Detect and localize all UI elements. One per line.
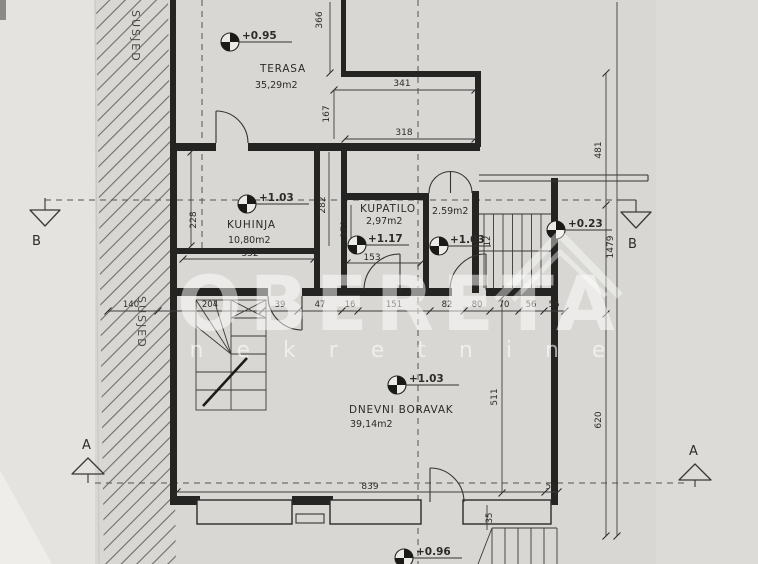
window-1 — [197, 500, 292, 524]
neighbor-label-top: SUSJED — [129, 10, 142, 63]
level-living: +1.03 — [409, 373, 444, 385]
room-kuhinja-area: 10,80m2 — [228, 235, 271, 246]
room-kuhinja-name: KUHINJA — [227, 219, 276, 231]
dim-282: 282 — [318, 196, 328, 213]
room-predsoblje-area: 2.59m2 — [432, 206, 468, 217]
window-2 — [330, 500, 421, 524]
dim-row-140: 140 — [123, 300, 139, 310]
section-a-left-label: A — [82, 438, 91, 453]
dim-341: 341 — [393, 79, 410, 89]
dim-35: 35 — [485, 513, 495, 524]
neighbor-boundary-hatch: SUSJED SUSJED — [96, 0, 176, 564]
watermark-subtitle: n e k r e t n i n e — [190, 338, 619, 363]
watermark-brand: OBERETA — [177, 259, 623, 348]
room-kupatilo-area: 2,97m2 — [366, 216, 402, 227]
room-kupatilo-name: KUPATILO — [360, 203, 416, 215]
section-a-right-label: A — [689, 444, 698, 459]
dim-481: 481 — [594, 141, 604, 158]
dim-620: 620 — [594, 411, 604, 428]
room-dnevni-area: 39,14m2 — [350, 419, 393, 430]
dim-170: 170 — [340, 220, 350, 237]
dim-511: 511 — [490, 388, 500, 405]
level-terrace: +0.95 — [242, 30, 277, 42]
dim-366: 366 — [315, 11, 325, 28]
dim-167: 167 — [322, 105, 332, 122]
room-terasa-name: TERASA — [259, 63, 306, 75]
room-terasa-area: 35,29m2 — [255, 80, 298, 91]
dim-228: 228 — [189, 211, 199, 228]
level-exterior: +0.96 — [416, 546, 451, 558]
dim-1479: 1479 — [606, 235, 616, 258]
section-b-left-label: B — [32, 234, 41, 249]
section-b-right-label: B — [628, 237, 637, 252]
floor-plan-scan: SUSJED SUSJED — [0, 0, 758, 564]
dim-318: 318 — [395, 128, 412, 138]
floor-plan-drawing: SUSJED SUSJED — [0, 0, 758, 564]
dim-56-bottom: 56 — [546, 482, 557, 492]
dim-839: 839 — [361, 482, 378, 492]
level-bathroom: +1.17 — [368, 233, 403, 245]
level-kitchen: +1.03 — [259, 192, 294, 204]
level-entry: +0.23 — [568, 218, 603, 230]
room-dnevni-name: DNEVNI BORAVAK — [349, 404, 454, 416]
window-3 — [463, 500, 551, 524]
level-hall: +1.03 — [450, 234, 485, 246]
dim-352: 352 — [241, 249, 258, 259]
windows — [197, 500, 551, 524]
